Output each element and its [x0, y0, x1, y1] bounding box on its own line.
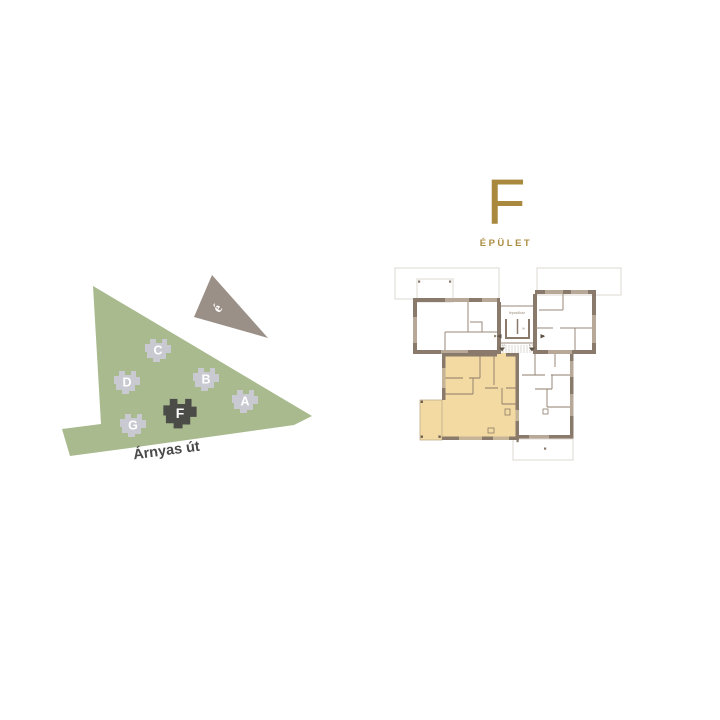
building-subheading: ÉPÜLET: [444, 238, 568, 249]
unit-label-f11: F 1.1: [499, 343, 505, 347]
arrow-right-icon: [541, 334, 546, 339]
north-arrow: é: [194, 275, 268, 338]
building-heading: F: [446, 170, 566, 234]
building-letter: G: [128, 419, 138, 433]
building-letter: F: [176, 405, 185, 421]
page: é A B C D G F Árnyas út F ÉPÜLET: [0, 0, 720, 720]
building-letter: A: [240, 395, 249, 409]
apartment-upper-right: [535, 290, 596, 354]
apartment-lower-right: [519, 354, 574, 439]
floor-plan: lépcsőház lift: [385, 255, 635, 470]
stairwell-label: lépcsőház: [509, 311, 525, 315]
unit-f-area: [420, 353, 519, 440]
building-letter: B: [201, 373, 210, 387]
site-map: é A B C D G F Árnyas út: [55, 255, 320, 470]
building-letter: D: [122, 376, 131, 390]
unit-label-f12: F 1.2: [529, 343, 535, 347]
lift-label: lift: [522, 327, 525, 331]
unit-f-highlight[interactable]: [420, 353, 519, 440]
site-area: [62, 286, 312, 456]
building-letter: C: [153, 344, 162, 358]
apartment-upper-left: [413, 298, 501, 354]
